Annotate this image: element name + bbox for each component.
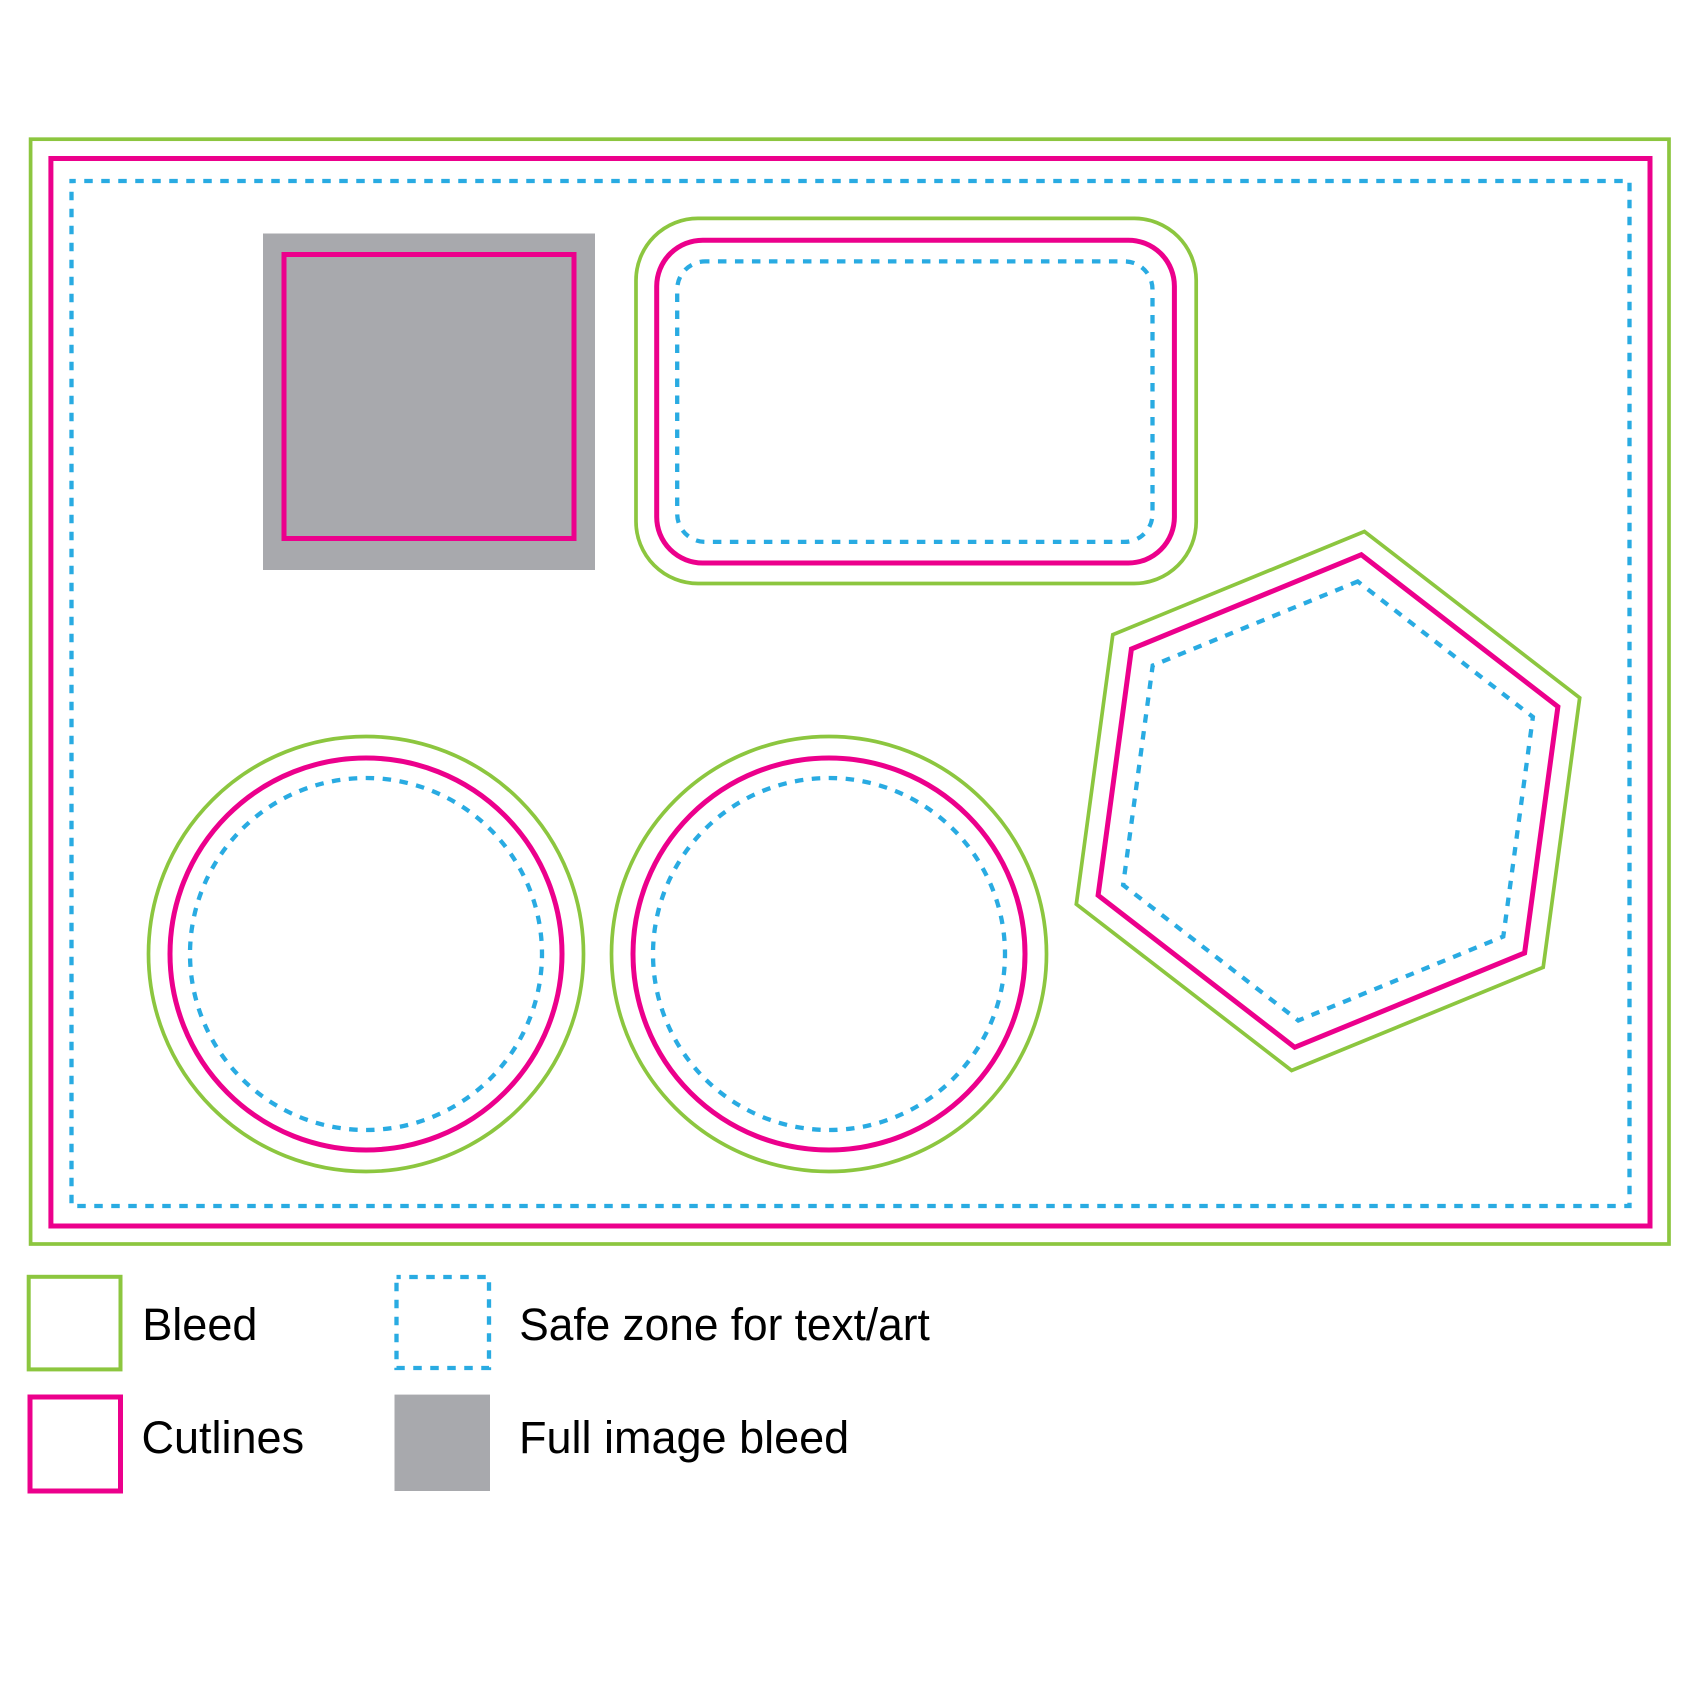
svg-text:Safe zone for text/art: Safe zone for text/art	[519, 1299, 930, 1350]
svg-text:Full image bleed: Full image bleed	[519, 1412, 849, 1463]
svg-text:Cutlines: Cutlines	[142, 1412, 305, 1463]
svg-text:Bleed: Bleed	[142, 1299, 257, 1350]
